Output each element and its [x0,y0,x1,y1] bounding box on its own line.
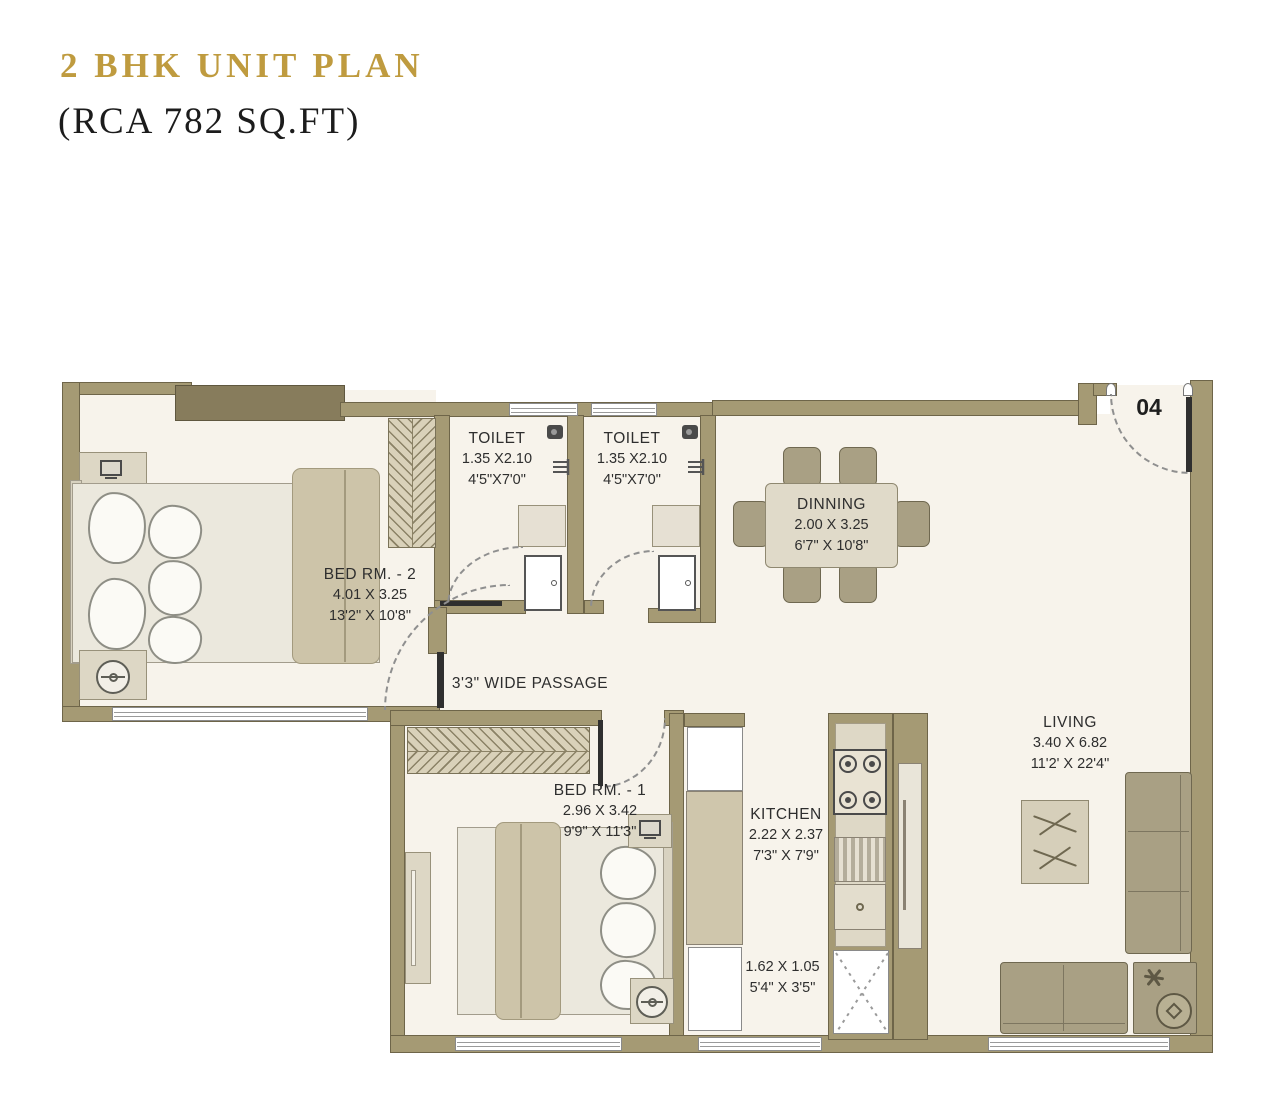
room-dim-metric: 1.35 X2.10 [462,449,532,470]
window [591,403,657,416]
door-leaf [598,720,603,786]
washbasin [518,505,566,547]
washbasin [652,505,700,547]
room-dim-metric: 1.35 X2.10 [597,449,667,470]
room-label-bed2: BED RM. - 2 4.01 X 3.25 13'2" X 10'8" [290,562,450,628]
clock-icon [1156,993,1192,1029]
room-label-dinning: DINNING 2.00 X 3.25 6'7" X 10'8" [765,483,898,568]
room-dim-metric: 2.22 X 2.37 [749,825,823,846]
kitchen-door-handle [903,800,906,910]
wardrobe-pattern [412,419,435,547]
room-dim-metric: 2.00 X 3.25 [794,515,868,536]
coffee-table [1021,800,1089,884]
floor-plan: TOILET 1.35 X2.10 4'5"X7'0" TOILET 1.35 … [0,0,1280,1105]
sofa-two-seater [1000,962,1128,1034]
room-dim-imperial: 7'3" X 7'9" [753,846,819,867]
fan-icon [636,986,668,1018]
shaft-cross [834,951,890,1035]
room-name: TOILET [604,428,661,449]
room-name: DINNING [797,494,866,515]
duct-shaft [833,950,889,1034]
wardrobe-pattern [389,419,412,547]
floor-plan-page: 2 BHK UNIT PLAN (RCA 782 SQ.FT) [0,0,1280,1105]
room-name: TOILET [469,428,526,449]
door-leaf [437,652,444,708]
window [698,1037,822,1051]
bed1-duvet [495,822,561,1020]
window [509,403,578,416]
sofa-three-seater [1125,772,1192,954]
wall [684,713,745,727]
room-label-kitchen: KITCHEN 2.22 X 2.37 7'3" X 7'9" [726,802,846,868]
dining-chair [783,447,821,487]
toilet-door [658,555,696,611]
room-dim-imperial: 4'5"X7'0" [603,470,661,491]
room-dim-metric: 2.96 X 3.42 [563,801,637,822]
window [455,1037,622,1051]
room-label-bed1: BED RM. - 1 2.96 X 3.42 9'9" X 11'3" [515,778,685,844]
wall [390,713,405,1053]
room-name: LIVING [1043,712,1097,733]
wall [700,415,716,623]
burner-icon [839,755,857,773]
tap-icon [687,458,709,476]
plant-icon [1142,967,1166,987]
room-dim-imperial: 4'5"X7'0" [468,470,526,491]
room-name: BED RM. - 2 [324,564,416,585]
room-dim-metric: 3.40 X 6.82 [1033,733,1107,754]
table-decor [1039,812,1071,835]
room-label-utility: 1.62 X 1.05 5'4" X 3'5" [730,955,835,1001]
room-dim-metric: 1.62 X 1.05 [745,957,819,978]
sofa-back-line [1003,1023,1125,1024]
room-label-toilet1: TOILET 1.35 X2.10 4'5"X7'0" [441,427,553,491]
dining-chair [839,563,877,603]
kitchen-door-panel [898,763,922,949]
window [988,1037,1170,1051]
wall-ledge [175,385,345,421]
wall [390,710,602,726]
room-dim-imperial: 6'7" X 10'8" [795,536,869,557]
sink-drain [856,903,864,911]
wardrobe [388,418,436,548]
duvet-fold-line [520,824,522,1018]
fan-icon [96,660,130,694]
dresser [405,852,431,984]
room-dim-metric: 4.01 X 3.25 [333,585,407,606]
dresser-mirror [411,870,416,966]
dining-chair [733,501,769,547]
tap-icon [552,458,574,476]
wardrobe-pattern [408,728,589,751]
room-name: BED RM. - 1 [554,780,646,801]
room-dim-imperial: 13'2" X 10'8" [329,606,411,627]
dining-chair [783,563,821,603]
wardrobe-seam [412,419,413,547]
corner-table [1133,962,1197,1034]
wall [62,382,192,395]
wardrobe [407,727,590,774]
wall-right-outer [1190,380,1213,1053]
room-label-living: LIVING 3.40 X 6.82 11'2' X 22'4" [995,710,1145,776]
tv-icon [100,460,122,476]
wardrobe-pattern [408,751,589,774]
room-label-passage: 3'3" WIDE PASSAGE [450,672,610,694]
burner-icon [863,755,881,773]
room-name: KITCHEN [750,804,822,825]
fridge [687,727,743,791]
room-name: 3'3" WIDE PASSAGE [452,673,608,694]
sofa-back-line [1180,775,1181,951]
table-decor [1039,846,1071,869]
room-dim-imperial: 11'2' X 22'4" [1031,754,1110,775]
room-dim-imperial: 5'4" X 3'5" [750,978,816,999]
room-dim-imperial: 9'9" X 11'3" [564,822,637,843]
wall [712,400,1084,416]
window [112,707,368,721]
dining-chair [894,501,930,547]
room-label-toilet2: TOILET 1.35 X2.10 4'5"X7'0" [576,427,688,491]
wardrobe-seam [408,751,589,752]
burner-icon [863,791,881,809]
toilet-door [524,555,562,611]
unit-number: 04 [1126,394,1172,421]
dining-chair [839,447,877,487]
sofa-seat-line [1063,965,1064,1031]
